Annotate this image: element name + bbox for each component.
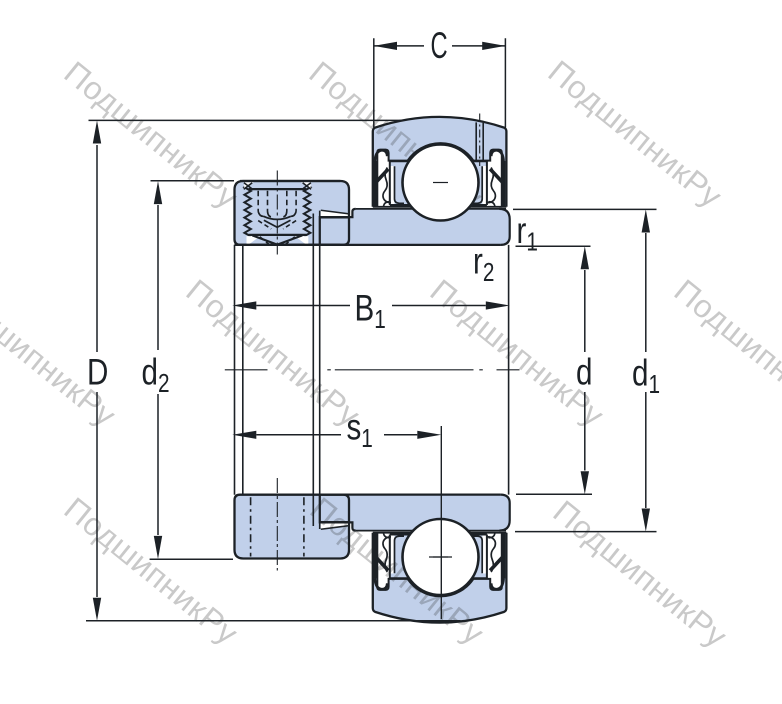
svg-text:C: C (431, 24, 448, 66)
svg-text:d: d (576, 352, 592, 393)
svg-text:D: D (87, 352, 108, 393)
